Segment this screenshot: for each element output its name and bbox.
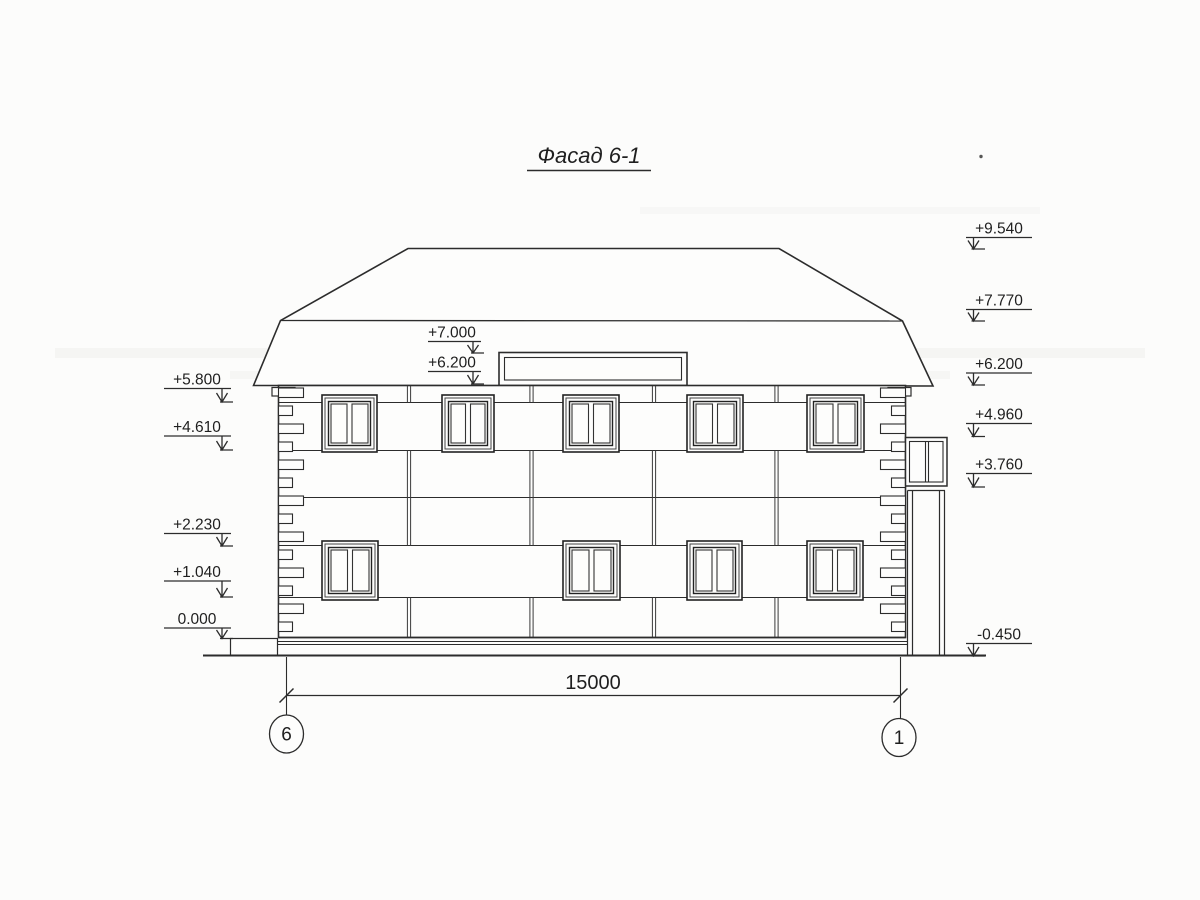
svg-text:+1.040: +1.040 bbox=[173, 564, 221, 581]
quoin-brick bbox=[892, 622, 906, 632]
window bbox=[563, 541, 620, 600]
drawing-sheet: Фасад 6-1 +5.800 +4.610 +2.230 +1.040 0.… bbox=[0, 0, 1200, 900]
axis-label: 1 bbox=[894, 728, 905, 749]
quoin-brick bbox=[279, 622, 293, 632]
window bbox=[687, 395, 743, 452]
facade-drawing: Фасад 6-1 +5.800 +4.610 +2.230 +1.040 0.… bbox=[0, 0, 1200, 900]
svg-text:+6.200: +6.200 bbox=[428, 355, 476, 372]
quoin-brick bbox=[279, 604, 304, 614]
axis-bubble-6: 6 bbox=[270, 715, 304, 753]
svg-text:+3.760: +3.760 bbox=[975, 457, 1023, 474]
quoin-brick bbox=[881, 496, 906, 506]
axis-label: 6 bbox=[281, 725, 292, 746]
svg-text:-0.450: -0.450 bbox=[977, 627, 1021, 644]
roof-break-line bbox=[281, 321, 903, 322]
quoin-brick bbox=[279, 460, 304, 470]
quoin-brick bbox=[279, 406, 293, 416]
quoin-brick bbox=[279, 568, 304, 578]
dimension-value: 15000 bbox=[565, 672, 621, 694]
plinth-left-step bbox=[231, 639, 278, 656]
ink-dot-artifact bbox=[979, 155, 982, 158]
quoin-brick bbox=[892, 514, 906, 524]
window bbox=[322, 395, 377, 452]
quoin-brick bbox=[279, 532, 304, 542]
quoin-brick bbox=[881, 568, 906, 578]
window bbox=[687, 541, 742, 600]
attic-louver bbox=[499, 353, 687, 386]
quoin-brick bbox=[279, 424, 304, 434]
window bbox=[442, 395, 494, 452]
svg-text:+5.800: +5.800 bbox=[173, 372, 221, 389]
quoin-brick bbox=[881, 604, 906, 614]
quoin-brick bbox=[279, 514, 293, 524]
quoin-brick bbox=[881, 460, 906, 470]
page-title: Фасад 6-1 bbox=[537, 143, 640, 168]
quoin-brick bbox=[881, 424, 906, 434]
window bbox=[807, 395, 864, 452]
window bbox=[563, 395, 619, 452]
svg-text:+9.540: +9.540 bbox=[975, 221, 1023, 238]
svg-text:0.000: 0.000 bbox=[178, 611, 217, 628]
quoin-brick bbox=[279, 586, 293, 596]
quoin-brick bbox=[279, 550, 293, 560]
svg-text:+4.960: +4.960 bbox=[975, 407, 1023, 424]
svg-text:+2.230: +2.230 bbox=[173, 517, 221, 534]
quoin-brick bbox=[279, 478, 293, 488]
quoin-brick bbox=[892, 586, 906, 596]
svg-text:+4.610: +4.610 bbox=[173, 419, 221, 436]
quoin-brick bbox=[881, 532, 906, 542]
quoin-brick bbox=[892, 406, 906, 416]
quoin-brick bbox=[881, 388, 906, 398]
window bbox=[322, 541, 378, 600]
window bbox=[807, 541, 863, 600]
quoin-brick bbox=[279, 442, 293, 452]
quoin-brick bbox=[892, 478, 906, 488]
quoin-brick bbox=[279, 388, 304, 398]
shaft-louver bbox=[906, 438, 948, 487]
svg-text:+7.000: +7.000 bbox=[428, 325, 476, 342]
quoin-brick bbox=[892, 550, 906, 560]
quoin-brick bbox=[892, 442, 906, 452]
svg-text:+6.200: +6.200 bbox=[975, 356, 1023, 373]
svg-text:+7.770: +7.770 bbox=[975, 293, 1023, 310]
axis-bubble-1: 1 bbox=[882, 719, 916, 757]
quoin-brick bbox=[279, 496, 304, 506]
